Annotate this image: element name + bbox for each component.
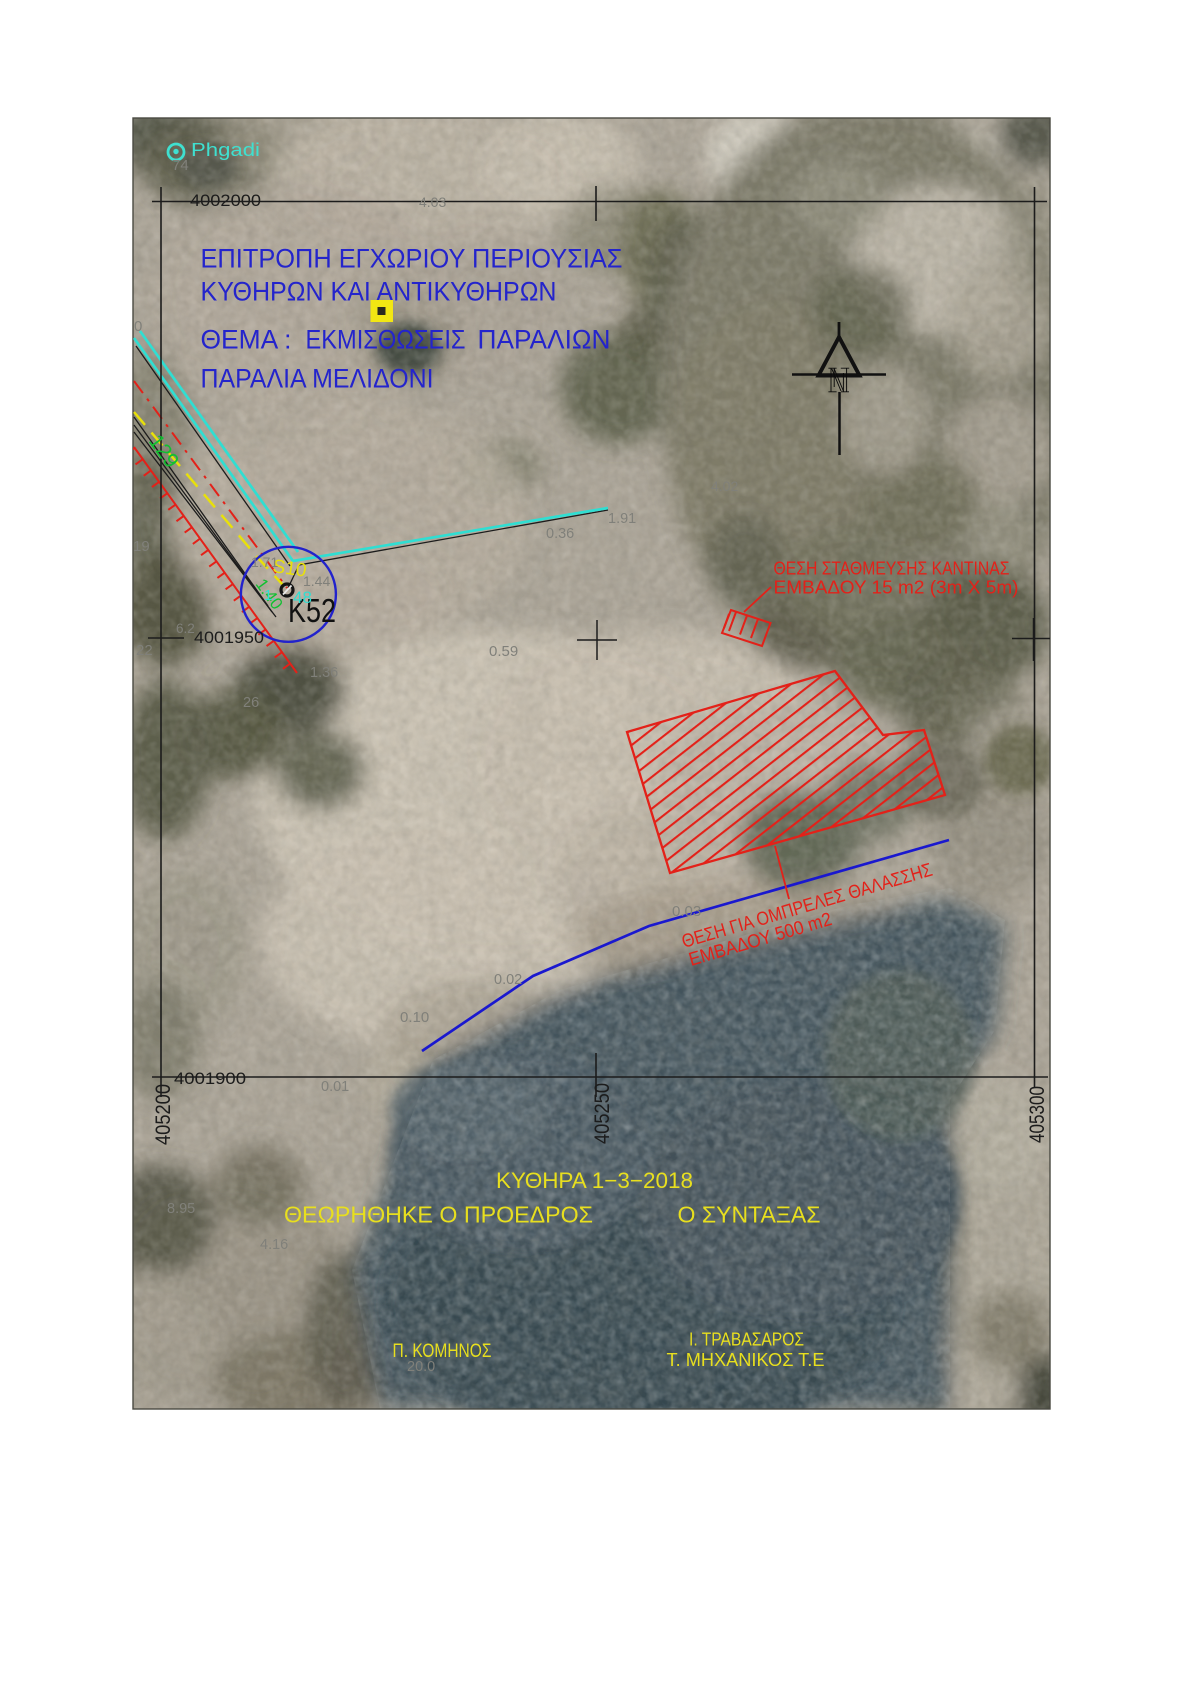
- svg-text:ΕΜΒΑΔΟΥ 15 m2 (3m X 5m): ΕΜΒΑΔΟΥ 15 m2 (3m X 5m): [774, 578, 1019, 598]
- svg-text:ΚΥΘΗΡΑ 1−3−2018: ΚΥΘΗΡΑ 1−3−2018: [496, 1168, 693, 1193]
- svg-text:4.03: 4.03: [419, 194, 446, 210]
- svg-text:26: 26: [243, 695, 259, 711]
- svg-text:405300: 405300: [1026, 1086, 1049, 1143]
- svg-text:ΕΠΙΤΡΟΠΗ ΕΓΧΩΡΙΟΥ ΠΕΡΙΟΥΣΙΑΣ: ΕΠΙΤΡΟΠΗ ΕΓΧΩΡΙΟΥ ΠΕΡΙΟΥΣΙΑΣ: [201, 244, 623, 274]
- svg-text:22: 22: [136, 642, 153, 659]
- svg-text:ΘΕΩΡΗΘΗΚΕ Ο ΠΡΟΕΔΡΟΣ: ΘΕΩΡΗΘΗΚΕ Ο ΠΡΟΕΔΡΟΣ: [284, 1202, 593, 1228]
- svg-text:48: 48: [293, 588, 312, 607]
- svg-text:ΕΚΜΙΣΘΩΣΕΙΣ: ΕΚΜΙΣΘΩΣΕΙΣ: [306, 325, 466, 355]
- svg-text:ΠΑΡΑΛΙΩΝ: ΠΑΡΑΛΙΩΝ: [478, 325, 611, 355]
- svg-text:4002000: 4002000: [190, 191, 261, 210]
- svg-text:Ι. ΤΡΑΒΑΣΑΡΟΣ: Ι. ΤΡΑΒΑΣΑΡΟΣ: [689, 1330, 804, 1350]
- svg-text:1.71: 1.71: [251, 554, 278, 570]
- svg-text:1.36: 1.36: [310, 665, 338, 681]
- svg-text:ΘΕΣΗ ΣΤΑΘΜΕΥΣΗΣ ΚΑΝΤΙΝΑΣ: ΘΕΣΗ ΣΤΑΘΜΕΥΣΗΣ ΚΑΝΤΙΝΑΣ: [774, 559, 1010, 579]
- svg-text:Ο ΣΥΝΤΑΞΑΣ: Ο ΣΥΝΤΑΞΑΣ: [678, 1202, 821, 1228]
- svg-text:ΠΑΡΑΛΙΑ ΜΕΛΙΔΟΝΙ: ΠΑΡΑΛΙΑ ΜΕΛΙΔΟΝΙ: [201, 364, 434, 394]
- svg-text:405250: 405250: [591, 1083, 614, 1144]
- svg-text:Τ. ΜΗΧΑΝΙΚΟΣ Τ.Ε: Τ. ΜΗΧΑΝΙΚΟΣ Τ.Ε: [667, 1350, 825, 1370]
- svg-text:1.: 1.: [264, 587, 277, 604]
- svg-text:0.36: 0.36: [546, 526, 574, 542]
- svg-text:4001900: 4001900: [174, 1069, 246, 1088]
- svg-text:ΘΕΜΑ :: ΘΕΜΑ :: [201, 325, 292, 355]
- svg-text:19: 19: [133, 538, 150, 555]
- svg-text:74: 74: [172, 157, 189, 174]
- svg-text:20.0: 20.0: [407, 1359, 435, 1375]
- svg-text:4.16: 4.16: [260, 1237, 288, 1253]
- svg-text:4001950: 4001950: [194, 628, 264, 647]
- svg-text:405200: 405200: [152, 1084, 175, 1145]
- svg-text:0: 0: [134, 318, 142, 335]
- svg-text:0.10: 0.10: [400, 1009, 429, 1026]
- svg-text:0.02: 0.02: [494, 972, 522, 988]
- svg-text:0.01: 0.01: [321, 1079, 349, 1095]
- svg-text:Phgadi: Phgadi: [191, 140, 260, 160]
- svg-text:1.44: 1.44: [303, 573, 330, 589]
- svg-text:4.02: 4.02: [711, 478, 738, 494]
- svg-text:0.03: 0.03: [672, 903, 701, 920]
- svg-text:8.95: 8.95: [167, 1201, 195, 1217]
- svg-text:0.59: 0.59: [489, 643, 518, 660]
- svg-text:1.91: 1.91: [608, 511, 636, 527]
- svg-text:6.2: 6.2: [176, 621, 195, 636]
